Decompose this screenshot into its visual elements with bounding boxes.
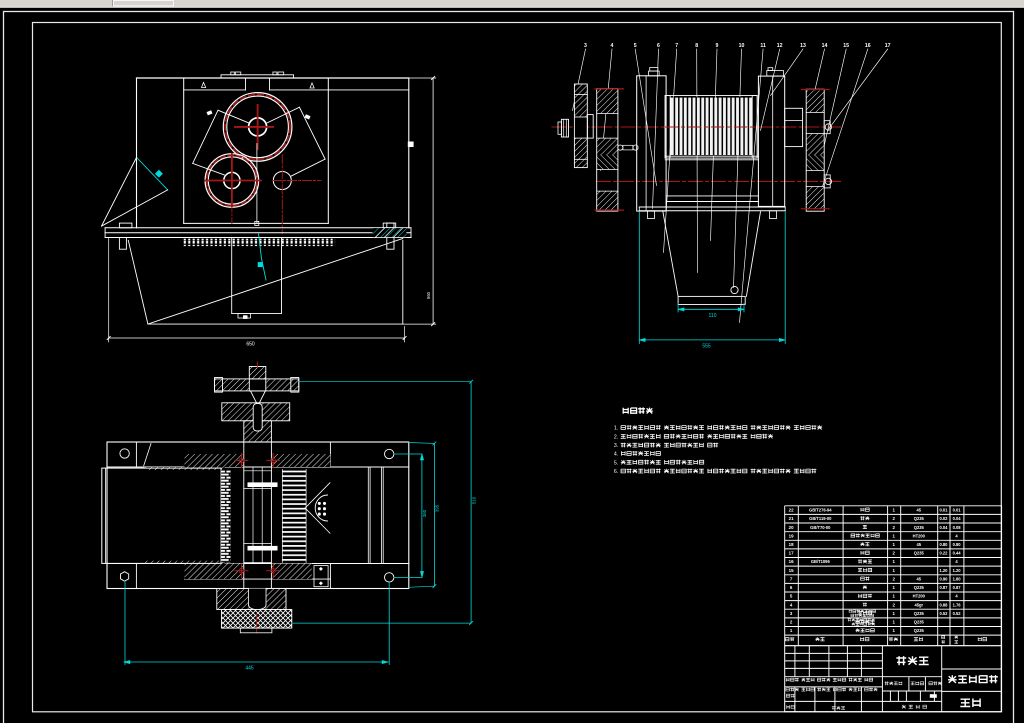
svg-text:0.87: 0.87 — [953, 585, 962, 590]
svg-text:Q235: Q235 — [914, 525, 925, 530]
svg-text:1.: 1. — [614, 426, 618, 432]
svg-text:17: 17 — [885, 43, 891, 49]
svg-text:5: 5 — [634, 43, 637, 49]
svg-text:22: 22 — [789, 508, 794, 513]
svg-text:HT200: HT200 — [913, 594, 926, 599]
svg-text:6: 6 — [657, 43, 660, 49]
svg-text:0.22: 0.22 — [939, 551, 948, 556]
svg-text:9: 9 — [716, 43, 719, 49]
svg-text:45: 45 — [917, 508, 922, 513]
svg-text:510: 510 — [471, 496, 476, 504]
svg-text:0.04: 0.04 — [953, 516, 962, 521]
svg-text:110: 110 — [709, 313, 717, 319]
svg-text:0.52: 0.52 — [953, 611, 962, 616]
svg-text:1.76: 1.76 — [953, 602, 962, 607]
svg-text:2.: 2. — [614, 434, 618, 440]
svg-text:17: 17 — [789, 551, 794, 556]
svg-text:0.87: 0.87 — [939, 585, 948, 590]
svg-text:395: 395 — [435, 504, 440, 512]
svg-text:1.20: 1.20 — [939, 568, 948, 573]
svg-text:0.44: 0.44 — [953, 551, 962, 556]
svg-text:555: 555 — [702, 344, 711, 350]
svg-text:0.01: 0.01 — [953, 508, 962, 513]
svg-text:GB/T276-94: GB/T276-94 — [809, 508, 832, 513]
svg-text:0.02: 0.02 — [939, 516, 948, 521]
svg-text:0.88: 0.88 — [939, 602, 948, 607]
svg-text:45: 45 — [917, 576, 922, 581]
svg-text:0.90: 0.90 — [939, 576, 948, 581]
svg-text:16: 16 — [865, 43, 871, 49]
svg-text:0.04: 0.04 — [939, 525, 948, 530]
svg-text:18: 18 — [789, 542, 794, 547]
svg-text:12: 12 — [777, 43, 783, 49]
svg-text:6.: 6. — [614, 469, 618, 475]
svg-text:GB/T70-00: GB/T70-00 — [810, 525, 831, 530]
svg-text:21: 21 — [789, 516, 794, 521]
svg-text:8: 8 — [695, 43, 698, 49]
svg-text:20: 20 — [789, 525, 794, 530]
svg-text:15: 15 — [789, 568, 794, 573]
svg-text:45: 45 — [917, 542, 922, 547]
svg-text:360: 360 — [422, 509, 427, 517]
svg-text:445: 445 — [245, 666, 254, 672]
svg-text:HT200: HT200 — [913, 533, 926, 538]
svg-text:Q235: Q235 — [914, 551, 925, 556]
svg-text:7: 7 — [675, 43, 678, 49]
svg-text:11: 11 — [760, 43, 766, 49]
svg-text:19: 19 — [789, 533, 794, 538]
svg-text:0.08: 0.08 — [953, 525, 962, 530]
svg-text:13: 13 — [800, 43, 806, 49]
svg-text:0.80: 0.80 — [953, 542, 962, 547]
svg-text:GB/T119-00: GB/T119-00 — [809, 516, 832, 521]
svg-text:560: 560 — [426, 291, 431, 299]
svg-text:4.: 4. — [614, 452, 618, 458]
svg-text:5.: 5. — [614, 460, 618, 466]
svg-text:Q235: Q235 — [914, 611, 925, 616]
svg-text:45gr: 45gr — [914, 602, 923, 607]
svg-text:Q235: Q235 — [914, 516, 925, 521]
svg-text:3: 3 — [584, 43, 587, 49]
svg-text:10: 10 — [739, 43, 745, 49]
svg-text:650: 650 — [246, 342, 255, 348]
svg-text:1.80: 1.80 — [953, 576, 962, 581]
svg-text:1.20: 1.20 — [953, 568, 962, 573]
svg-text:Q235: Q235 — [914, 628, 925, 633]
svg-text:0.52: 0.52 — [939, 611, 948, 616]
svg-text:3.: 3. — [614, 443, 618, 449]
svg-text:4: 4 — [611, 43, 614, 49]
svg-text:GB/T1096: GB/T1096 — [811, 559, 831, 564]
svg-text:14: 14 — [822, 43, 828, 49]
svg-text:Q235: Q235 — [914, 585, 925, 590]
svg-text:15: 15 — [843, 43, 849, 49]
svg-text:0.01: 0.01 — [939, 508, 948, 513]
svg-text:0.80: 0.80 — [939, 542, 948, 547]
svg-text:Q235: Q235 — [914, 620, 925, 625]
svg-text:16: 16 — [789, 559, 794, 564]
